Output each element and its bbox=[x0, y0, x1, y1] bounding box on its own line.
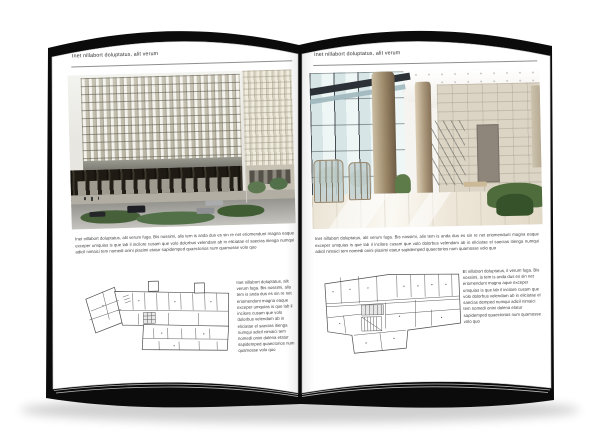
pedestrian bbox=[98, 196, 100, 200]
car bbox=[127, 206, 145, 213]
elevator-door bbox=[476, 124, 500, 183]
stair-railing bbox=[430, 120, 466, 186]
left-page-paragraph: Inet nillabort doluptatus, alit verum fu… bbox=[75, 230, 294, 256]
right-header-rule bbox=[313, 60, 537, 66]
facade-window-grid bbox=[81, 74, 242, 163]
left-caption-column: Inet nillabort doluptatus, alit verum fu… bbox=[236, 278, 300, 354]
car bbox=[205, 200, 223, 206]
lobby-interior-photo bbox=[309, 68, 542, 229]
floor-plan-left bbox=[82, 276, 234, 358]
floor-reflection bbox=[406, 192, 450, 227]
left-header-rule bbox=[71, 60, 292, 67]
round-column-small bbox=[414, 81, 433, 205]
car bbox=[89, 212, 105, 218]
adjacent-building bbox=[242, 69, 294, 166]
car bbox=[197, 207, 215, 214]
right-caption-column: Et nillabort doluptatus, il verum fuga. … bbox=[463, 267, 544, 325]
left-page: Inet nillabort doluptatus, alit verum In… bbox=[58, 40, 311, 379]
revolving-door bbox=[314, 160, 344, 203]
floor-plan-right bbox=[318, 263, 464, 358]
right-page: Inet nillabort doluptatus, alit verum In… bbox=[305, 37, 554, 382]
left-page-header: Inet nillabort doluptatus, alit verum bbox=[72, 51, 158, 59]
planter-greenery bbox=[496, 193, 533, 216]
pedestrian bbox=[84, 197, 86, 201]
right-page-paragraph: Inet nillabort doluptatus, alit verum fu… bbox=[315, 231, 539, 256]
wall-edge-column bbox=[530, 86, 541, 168]
revolving-door bbox=[348, 162, 371, 200]
right-page-header: Inet nillabort doluptatus, alit verum bbox=[314, 50, 400, 58]
building-exterior-photo bbox=[68, 69, 296, 229]
lobby-bench bbox=[464, 182, 487, 187]
pedestrian bbox=[91, 197, 93, 201]
potted-plant bbox=[394, 174, 410, 193]
